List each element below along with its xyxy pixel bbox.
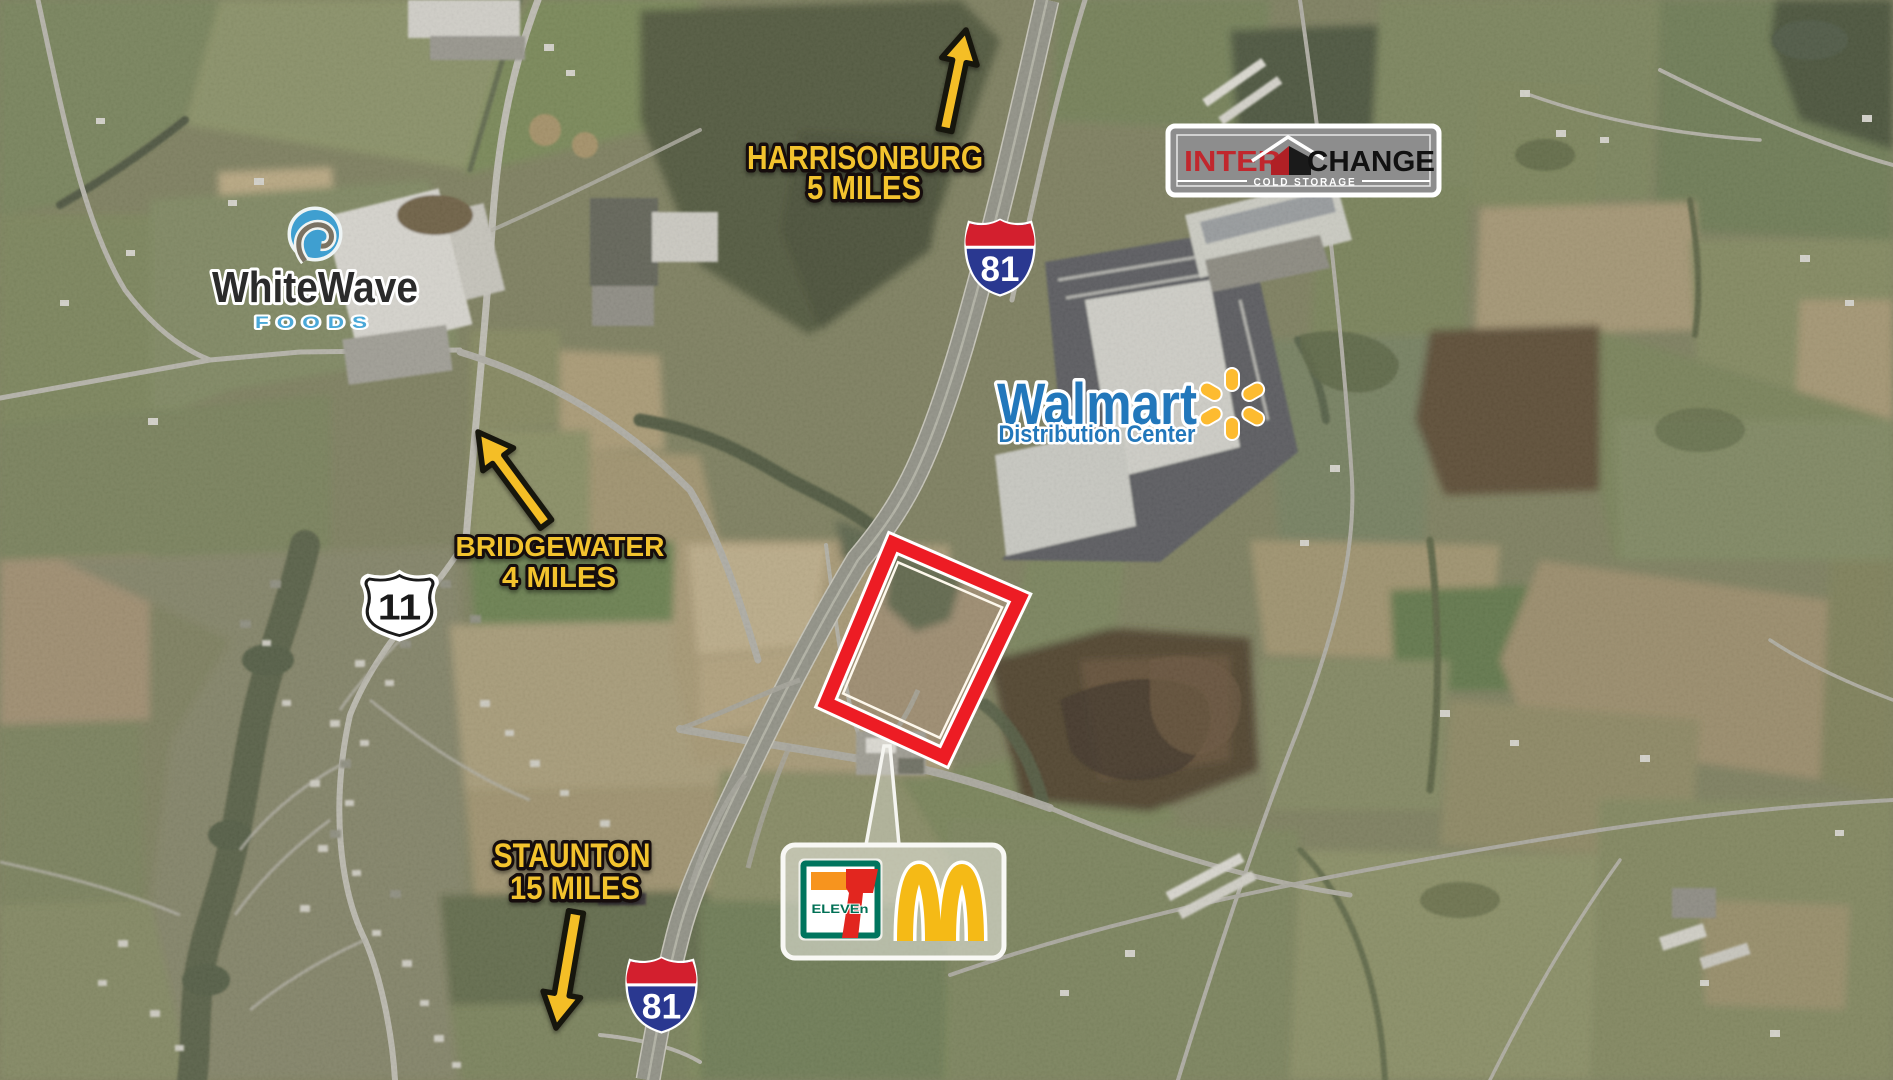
svg-text:15 MILES: 15 MILES: [510, 870, 640, 906]
svg-text:BRIDGEWATER: BRIDGEWATER: [456, 531, 665, 562]
svg-text:4 MILES: 4 MILES: [502, 562, 616, 594]
svg-text:Distribution Center: Distribution Center: [999, 421, 1196, 448]
svg-text:CHANGE: CHANGE: [1307, 146, 1435, 178]
svg-text:ELEVEn: ELEVEn: [812, 904, 869, 916]
svg-text:5 MILES: 5 MILES: [807, 169, 921, 206]
svg-text:81: 81: [642, 988, 681, 1027]
svg-text:FOODS: FOODS: [255, 313, 375, 332]
svg-text:WhiteWave: WhiteWave: [212, 263, 418, 312]
svg-text:11: 11: [378, 588, 421, 628]
svg-text:COLD STORAGE: COLD STORAGE: [1254, 177, 1357, 189]
svg-text:81: 81: [981, 250, 1020, 289]
